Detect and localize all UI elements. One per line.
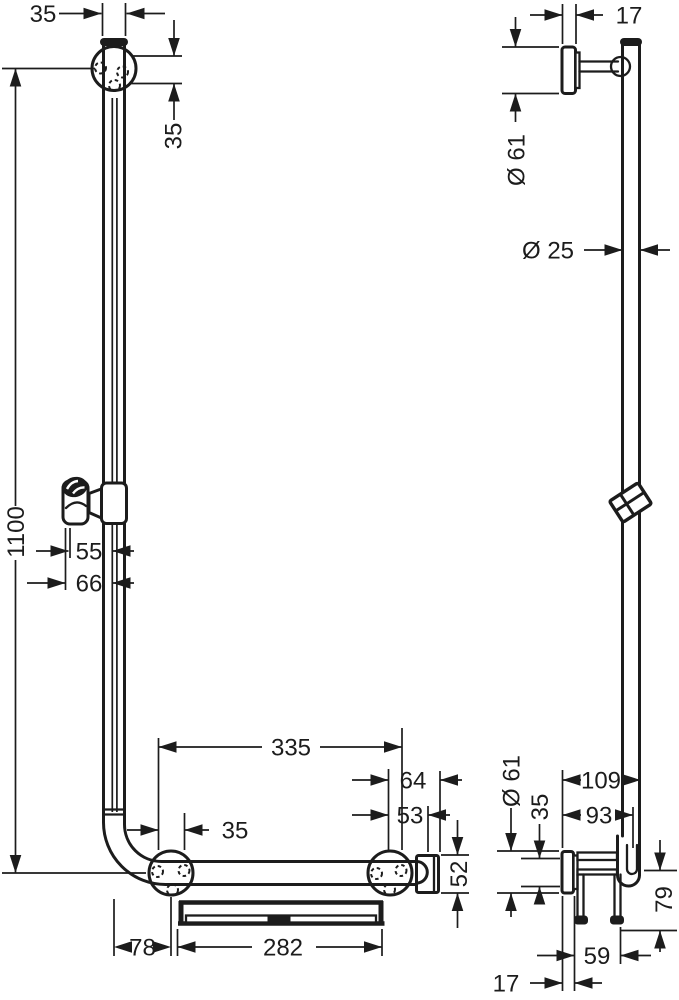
wall-bracket-top-side bbox=[562, 47, 630, 94]
bar-elbow-inner bbox=[627, 845, 637, 874]
dim-label-wall-to-bar-center: 93 bbox=[586, 803, 613, 830]
arm-cap bbox=[611, 57, 630, 76]
technical-drawing-page: 35 35 1100 55 bbox=[0, 0, 679, 1000]
dim-label-mount-hole-span: 35 bbox=[222, 818, 249, 845]
shower-slider-side bbox=[609, 483, 651, 522]
shower-slider-front bbox=[60, 474, 126, 524]
soap-shelf-side bbox=[574, 875, 624, 925]
dim-label-bottom-plate-depth: 17 bbox=[493, 971, 520, 998]
grab-bar-side bbox=[618, 38, 643, 886]
dim-label-top-plate-depth: 17 bbox=[616, 3, 643, 30]
shelf-foot bbox=[610, 916, 624, 925]
wall-bracket-bottom-side bbox=[562, 852, 617, 894]
dim-label-shelf-depth: 59 bbox=[584, 943, 611, 970]
grab-bar-front bbox=[100, 38, 417, 885]
bracket-arm-upper bbox=[578, 853, 618, 861]
wall-plate-bottom bbox=[562, 852, 574, 894]
shelf-foot bbox=[574, 916, 588, 925]
plate-flange bbox=[576, 53, 580, 89]
shower-bar-technical-drawing: 35 35 1100 55 bbox=[0, 0, 679, 1000]
soap-shelf-front bbox=[178, 901, 385, 925]
dim-label-mount-to-end-inner: 53 bbox=[397, 803, 424, 830]
end-holder-front bbox=[417, 856, 439, 893]
dim-label-bar-diameter: Ø 25 bbox=[522, 238, 574, 265]
dim-label-bar-to-mount: 78 bbox=[129, 935, 156, 962]
wall-plate-top bbox=[562, 47, 576, 94]
wall-mount-top bbox=[92, 47, 136, 92]
dim-label-mount-to-end-outer: 64 bbox=[400, 768, 427, 795]
dim-label-wall-to-bar-outer: 109 bbox=[581, 768, 621, 795]
shelf-drain bbox=[268, 915, 291, 925]
wall-mount-corner bbox=[149, 851, 193, 896]
dim-label-bar-width: 35 bbox=[30, 1, 57, 28]
front-view: 35 35 1100 55 bbox=[2, 1, 473, 962]
dim-label-top-overhang: 35 bbox=[161, 123, 188, 150]
dim-label-top-plate-diameter: Ø 61 bbox=[504, 134, 531, 186]
dim-label-bottom-plate-diameter: Ø 61 bbox=[499, 755, 526, 807]
dim-label-total-height: 1100 bbox=[3, 506, 30, 558]
dim-label-end-holder-height: 52 bbox=[446, 861, 473, 888]
dim-label-lower-mount-span: 335 bbox=[271, 735, 311, 762]
dim-label-bar-profile-height: 35 bbox=[527, 794, 554, 821]
side-view: 17 Ø 61 Ø 25 109 bbox=[493, 3, 678, 998]
slider-body bbox=[102, 483, 127, 524]
dim-label-holder-outer-offset: 66 bbox=[76, 571, 103, 598]
dim-label-holder-offset: 55 bbox=[76, 539, 103, 566]
dim-label-shelf-width: 282 bbox=[263, 935, 303, 962]
wall-mount-right bbox=[368, 851, 412, 895]
dim-label-bar-to-shelf-drop: 79 bbox=[651, 886, 678, 913]
